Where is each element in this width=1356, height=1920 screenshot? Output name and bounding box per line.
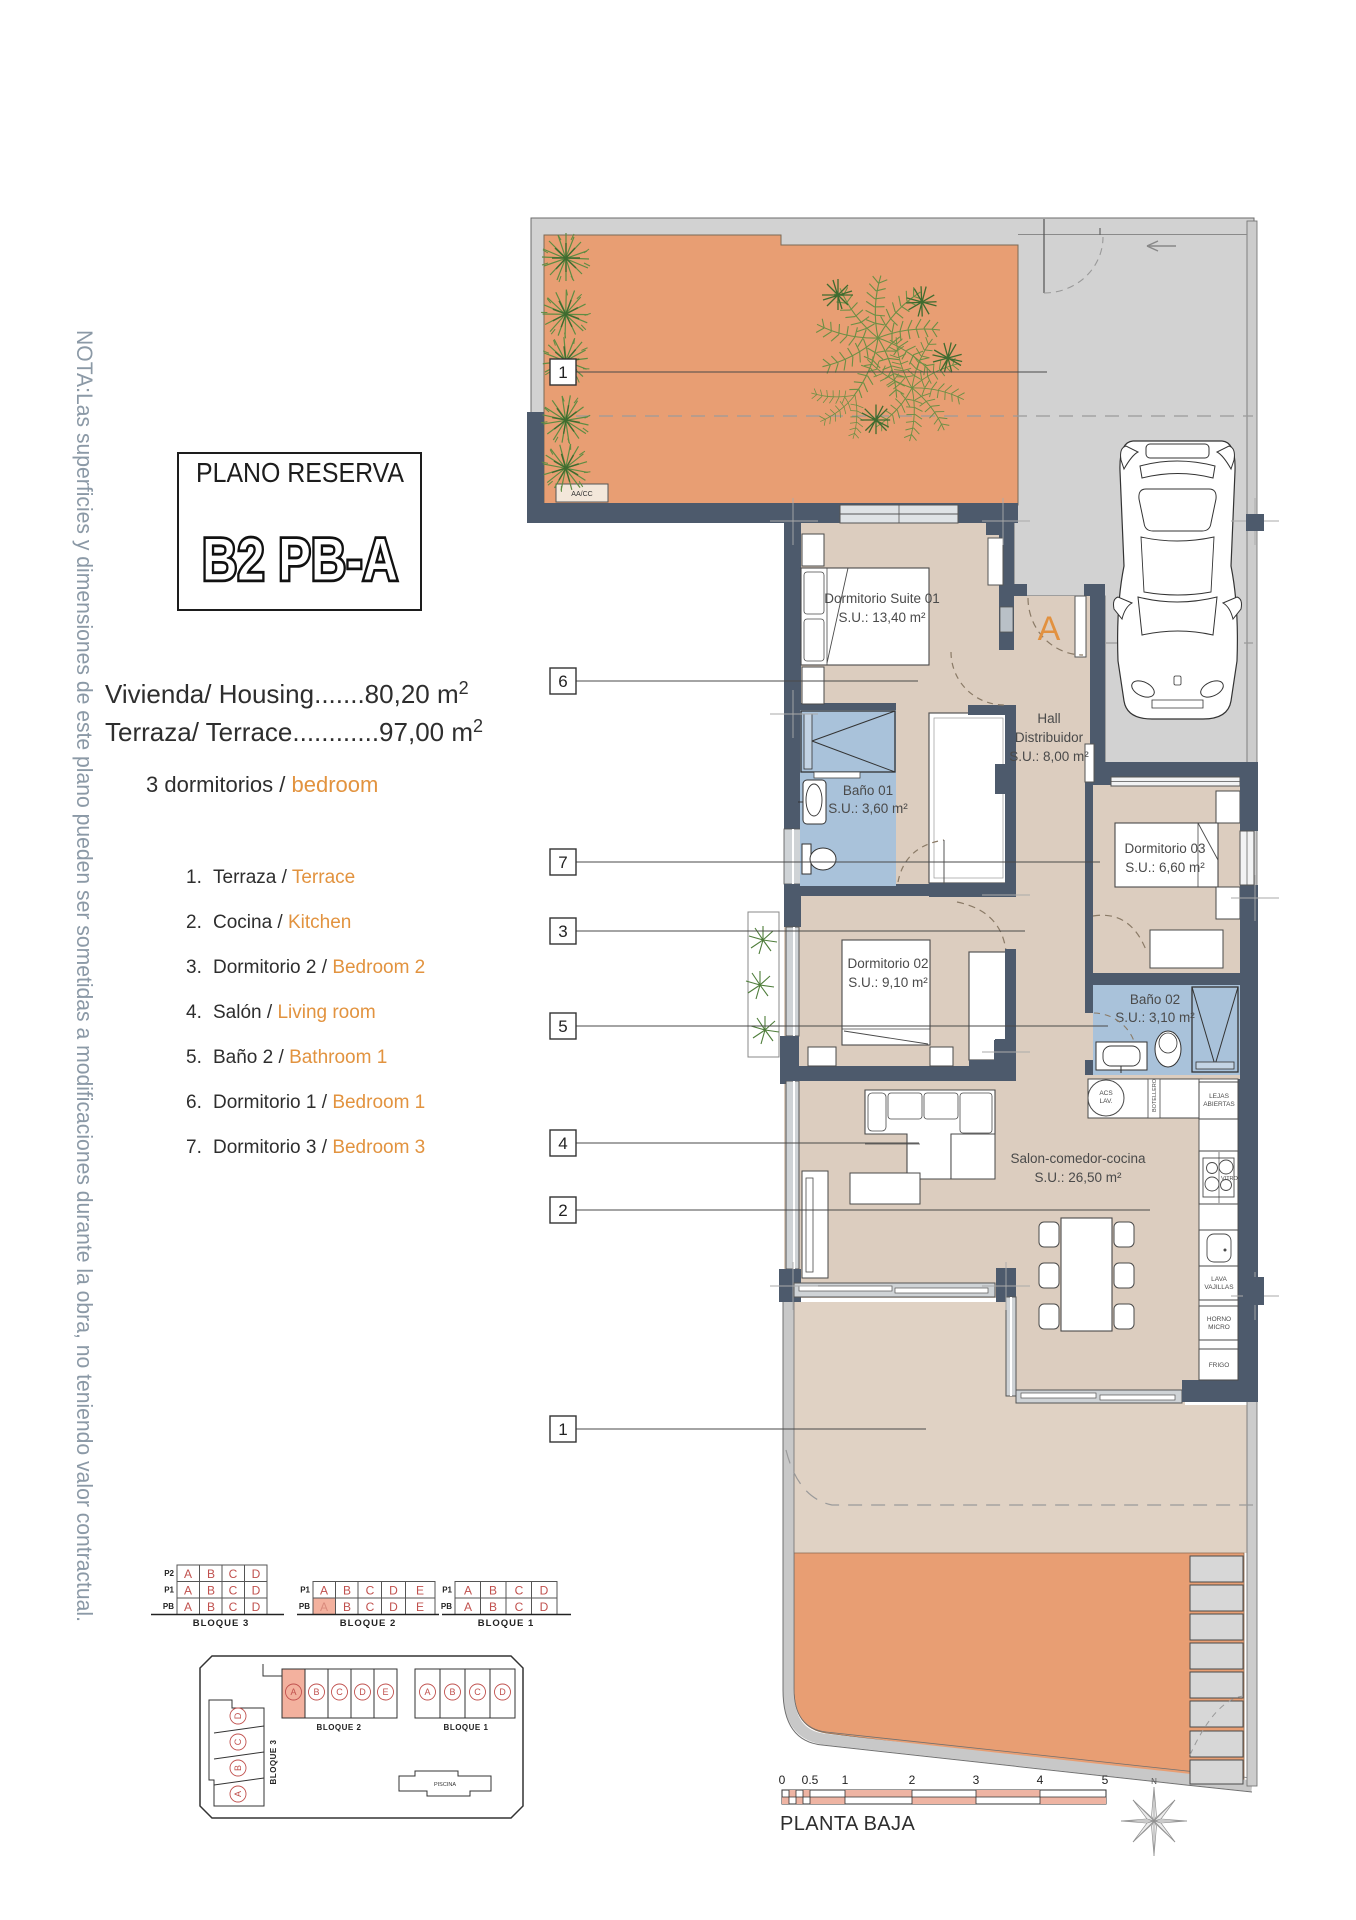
svg-text:Terraza/ Terrace............97: Terraza/ Terrace............97,00 m2 xyxy=(105,716,483,747)
svg-text:3: 3 xyxy=(558,922,567,941)
svg-text:C: C xyxy=(366,1600,375,1614)
svg-text:1: 1 xyxy=(842,1773,849,1787)
svg-text:B: B xyxy=(343,1584,351,1598)
svg-text:PB: PB xyxy=(441,1602,452,1611)
svg-text:B: B xyxy=(313,1687,319,1697)
svg-text:Dormitorio 02: Dormitorio 02 xyxy=(847,956,928,971)
svg-text:E: E xyxy=(416,1600,424,1614)
svg-text:A: A xyxy=(233,1791,243,1797)
svg-text:D: D xyxy=(233,1712,243,1719)
svg-text:5: 5 xyxy=(558,1017,567,1036)
svg-text:Hall: Hall xyxy=(1037,711,1060,726)
svg-text:D: D xyxy=(540,1584,549,1598)
svg-text:B: B xyxy=(489,1584,497,1598)
svg-text:A: A xyxy=(464,1600,472,1614)
svg-text:B: B xyxy=(343,1600,351,1614)
svg-text:C: C xyxy=(515,1600,524,1614)
svg-text:NOTA:Las superficies y dimensi: NOTA:Las superficies y dimensiones de es… xyxy=(72,330,97,1622)
svg-text:A: A xyxy=(464,1584,472,1598)
svg-text:PB: PB xyxy=(163,1602,174,1611)
svg-text:VITRO: VITRO xyxy=(1221,1176,1239,1182)
svg-text:P2: P2 xyxy=(164,1569,174,1578)
svg-text:S.U.: 8,00 m²: S.U.: 8,00 m² xyxy=(1009,749,1089,764)
svg-text:2: 2 xyxy=(558,1201,567,1220)
svg-text:D: D xyxy=(252,1584,261,1598)
svg-text:Distribuidor: Distribuidor xyxy=(1015,730,1084,745)
svg-text:BOTELLERO: BOTELLERO xyxy=(1152,1078,1158,1112)
svg-text:D: D xyxy=(389,1584,398,1598)
svg-text:2: 2 xyxy=(909,1773,916,1787)
svg-text:LAVA: LAVA xyxy=(1211,1276,1227,1283)
svg-text:A: A xyxy=(320,1600,328,1614)
svg-text:B2 PB-A: B2 PB-A xyxy=(202,526,398,593)
svg-text:B: B xyxy=(489,1600,497,1614)
svg-text:LAV.: LAV. xyxy=(1099,1098,1112,1105)
svg-text:Dormitorio Suite 01: Dormitorio Suite 01 xyxy=(824,591,940,606)
svg-text:4: 4 xyxy=(1037,1773,1044,1787)
svg-text:B: B xyxy=(449,1687,455,1697)
svg-text:A: A xyxy=(1038,610,1061,648)
svg-text:6.Dormitorio 1 / Bedroom 1: 6.Dormitorio 1 / Bedroom 1 xyxy=(186,1092,425,1113)
svg-text:7: 7 xyxy=(558,853,567,872)
svg-text:MICRO: MICRO xyxy=(1208,1324,1230,1331)
svg-text:Baño 02: Baño 02 xyxy=(1130,992,1180,1007)
svg-text:S.U.: 3,10 m²: S.U.: 3,10 m² xyxy=(1115,1010,1195,1025)
svg-text:E: E xyxy=(416,1584,424,1598)
svg-text:BLOQUE 3: BLOQUE 3 xyxy=(193,1618,250,1629)
svg-text:4: 4 xyxy=(558,1134,567,1153)
svg-text:Salon-comedor-cocina: Salon-comedor-cocina xyxy=(1010,1151,1146,1166)
svg-text:A: A xyxy=(320,1584,328,1598)
svg-text:VAJILLAS: VAJILLAS xyxy=(1204,1284,1234,1291)
svg-text:S.U.: 9,10 m²: S.U.: 9,10 m² xyxy=(848,975,928,990)
svg-text:D: D xyxy=(540,1600,549,1614)
svg-text:FRIGO: FRIGO xyxy=(1209,1362,1230,1369)
svg-text:1: 1 xyxy=(558,1420,567,1439)
svg-text:S.U.: 13,40 m²: S.U.: 13,40 m² xyxy=(838,610,926,625)
svg-text:ABIERTAS: ABIERTAS xyxy=(1203,1101,1235,1108)
svg-text:D: D xyxy=(389,1600,398,1614)
svg-text:P1: P1 xyxy=(164,1586,174,1595)
svg-text:0.5: 0.5 xyxy=(802,1773,819,1787)
svg-text:BLOQUE 3: BLOQUE 3 xyxy=(269,1740,278,1785)
svg-text:BLOQUE 2: BLOQUE 2 xyxy=(317,1723,362,1732)
svg-text:HORNO: HORNO xyxy=(1207,1316,1231,1323)
svg-text:3 dormitorios / bedroom: 3 dormitorios / bedroom xyxy=(146,772,378,797)
svg-text:Baño 01: Baño 01 xyxy=(843,783,893,798)
svg-text:B: B xyxy=(207,1600,215,1614)
svg-text:C: C xyxy=(474,1687,481,1697)
svg-text:PLANO RESERVA: PLANO RESERVA xyxy=(196,457,404,488)
svg-text:LEJAS: LEJAS xyxy=(1209,1093,1230,1100)
svg-text:Vivienda/ Housing.......80,20: Vivienda/ Housing.......80,20 m2 xyxy=(105,678,469,709)
svg-text:BLOQUE 2: BLOQUE 2 xyxy=(340,1618,397,1629)
svg-text:3.Dormitorio 2 / Bedroom 2: 3.Dormitorio 2 / Bedroom 2 xyxy=(186,957,425,978)
svg-text:C: C xyxy=(229,1567,238,1581)
svg-text:0: 0 xyxy=(779,1773,786,1787)
svg-text:C: C xyxy=(233,1738,243,1745)
svg-text:A: A xyxy=(290,1687,296,1697)
svg-text:PLANTA BAJA: PLANTA BAJA xyxy=(780,1813,915,1835)
svg-text:D: D xyxy=(499,1687,506,1697)
svg-text:S.U.: 26,50 m²: S.U.: 26,50 m² xyxy=(1034,1170,1122,1185)
svg-text:E: E xyxy=(382,1687,388,1697)
svg-text:P1: P1 xyxy=(300,1586,310,1595)
svg-text:7.Dormitorio 3 / Bedroom 3: 7.Dormitorio 3 / Bedroom 3 xyxy=(186,1137,425,1158)
svg-text:C: C xyxy=(336,1687,343,1697)
svg-text:C: C xyxy=(366,1584,375,1598)
svg-text:S.U.: 3,60 m²: S.U.: 3,60 m² xyxy=(828,801,908,816)
svg-text:3: 3 xyxy=(973,1773,980,1787)
svg-text:A: A xyxy=(424,1687,430,1697)
svg-text:Dormitorio 03: Dormitorio 03 xyxy=(1124,841,1205,856)
svg-text:D: D xyxy=(359,1687,366,1697)
svg-text:PISCINA: PISCINA xyxy=(434,1782,456,1788)
svg-text:N: N xyxy=(1151,1777,1157,1786)
svg-text:B: B xyxy=(207,1584,215,1598)
svg-text:PB: PB xyxy=(299,1602,310,1611)
svg-text:5: 5 xyxy=(1102,1773,1109,1787)
svg-text:AA/CC: AA/CC xyxy=(571,491,592,498)
svg-text:D: D xyxy=(252,1567,261,1581)
svg-text:C: C xyxy=(229,1584,238,1598)
svg-text:A: A xyxy=(184,1584,192,1598)
svg-text:C: C xyxy=(515,1584,524,1598)
svg-text:BLOQUE 1: BLOQUE 1 xyxy=(444,1723,489,1732)
svg-text:1: 1 xyxy=(558,363,567,382)
svg-text:BLOQUE 1: BLOQUE 1 xyxy=(478,1618,535,1629)
svg-text:C: C xyxy=(229,1600,238,1614)
svg-text:6: 6 xyxy=(558,672,567,691)
svg-text:D: D xyxy=(252,1600,261,1614)
svg-text:B: B xyxy=(207,1567,215,1581)
svg-text:B: B xyxy=(233,1765,243,1771)
svg-text:A: A xyxy=(184,1600,192,1614)
svg-text:4.Salón / Living room: 4.Salón / Living room xyxy=(186,1002,376,1023)
svg-text:ACS: ACS xyxy=(1099,1090,1113,1097)
svg-text:S.U.: 6,60 m²: S.U.: 6,60 m² xyxy=(1125,860,1205,875)
svg-text:P1: P1 xyxy=(442,1586,452,1595)
svg-text:5.Baño 2 / Bathroom 1: 5.Baño 2 / Bathroom 1 xyxy=(186,1047,387,1068)
svg-text:A: A xyxy=(184,1567,192,1581)
